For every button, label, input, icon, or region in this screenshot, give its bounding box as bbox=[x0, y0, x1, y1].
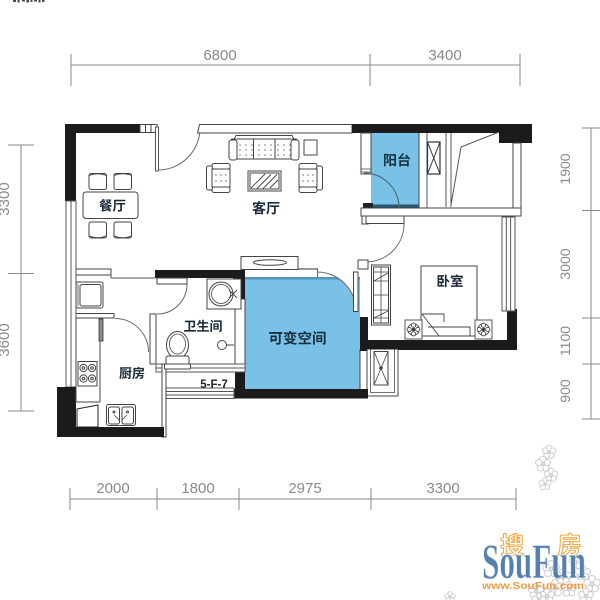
svg-text:3000: 3000 bbox=[557, 248, 573, 279]
svg-text:1900: 1900 bbox=[557, 153, 573, 184]
svg-text:1100: 1100 bbox=[557, 326, 573, 356]
svg-text:6800: 6800 bbox=[203, 47, 236, 64]
svg-text:3300: 3300 bbox=[0, 182, 13, 215]
svg-text:1800: 1800 bbox=[181, 480, 214, 497]
svg-text:3400: 3400 bbox=[428, 47, 461, 64]
svg-text:2000: 2000 bbox=[96, 480, 129, 497]
svg-text:3600: 3600 bbox=[0, 323, 13, 356]
svg-text:2975: 2975 bbox=[288, 480, 321, 497]
svg-text:900: 900 bbox=[557, 379, 573, 403]
svg-text:www.SouFun.com: www.SouFun.com bbox=[481, 580, 584, 592]
svg-text:3300: 3300 bbox=[426, 480, 459, 497]
svg-text:5-F-7: 5-F-7 bbox=[200, 379, 227, 391]
